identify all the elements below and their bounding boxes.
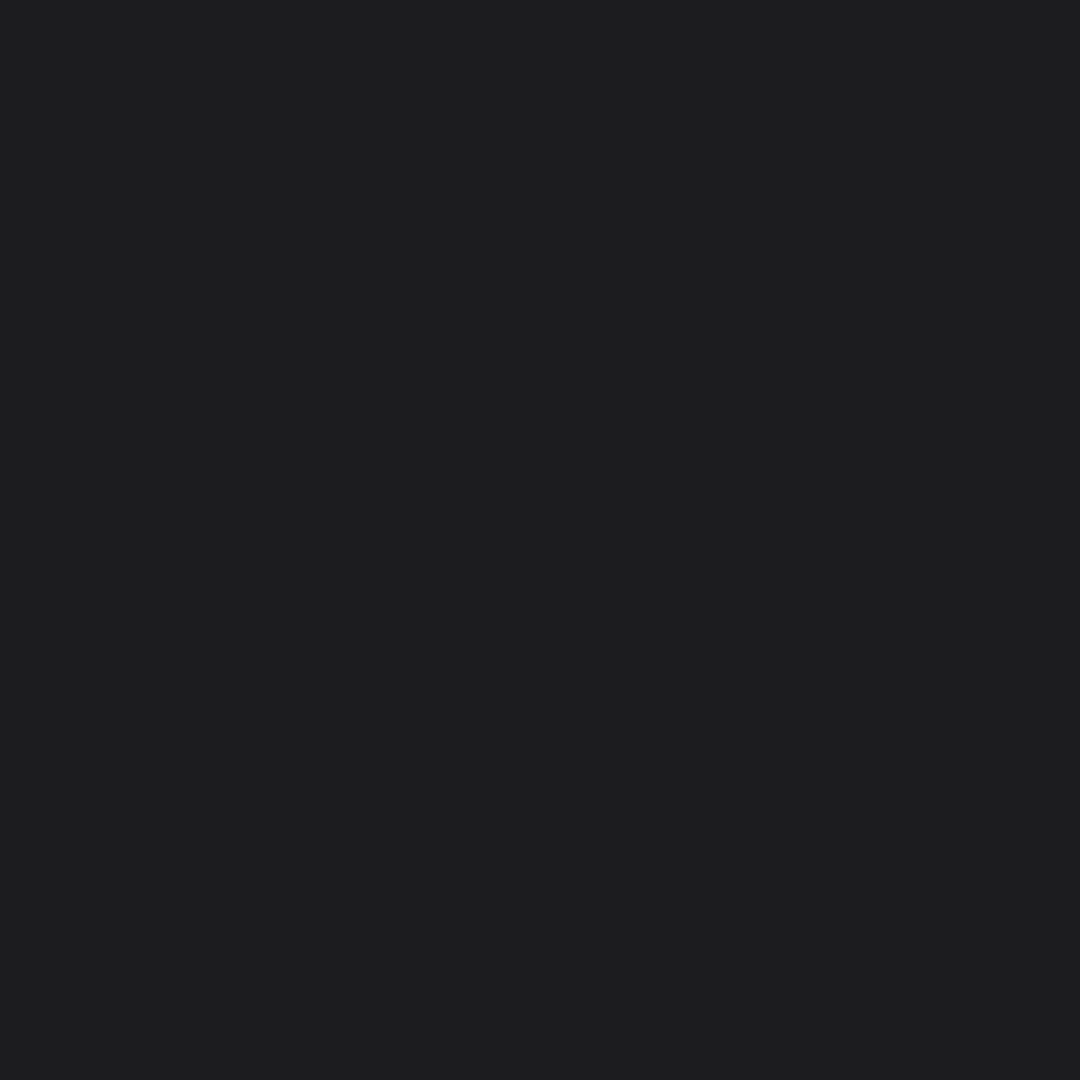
- uv-sheet-canvas: [0, 0, 1080, 1080]
- uv-wireframe-sheet: [0, 0, 1080, 1080]
